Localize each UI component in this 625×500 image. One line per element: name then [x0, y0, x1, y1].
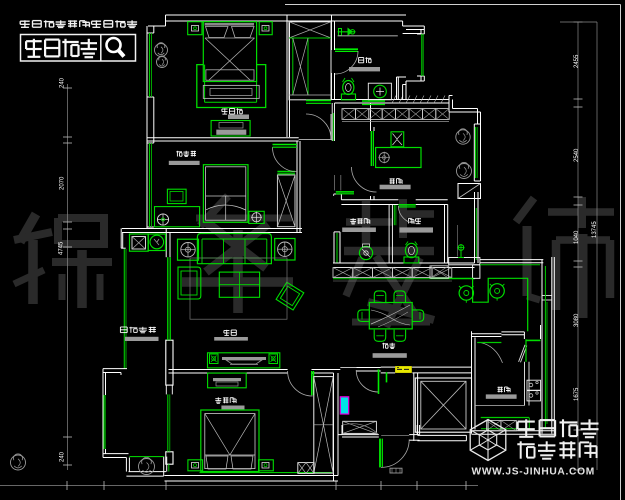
svg-text:WWW.JS-JINHUA.COM: WWW.JS-JINHUA.COM: [472, 467, 595, 478]
svg-text:1675: 1675: [574, 387, 580, 401]
svg-text:1040: 1040: [574, 230, 580, 244]
svg-text:2455: 2455: [574, 54, 580, 68]
svg-text:3080: 3080: [574, 313, 580, 327]
svg-text:4745: 4745: [59, 241, 65, 255]
svg-text:240: 240: [60, 77, 66, 88]
svg-text:2540: 2540: [574, 148, 580, 162]
svg-text:240: 240: [60, 451, 66, 462]
svg-text:2070: 2070: [60, 176, 66, 190]
svg-text:13745: 13745: [592, 221, 598, 238]
